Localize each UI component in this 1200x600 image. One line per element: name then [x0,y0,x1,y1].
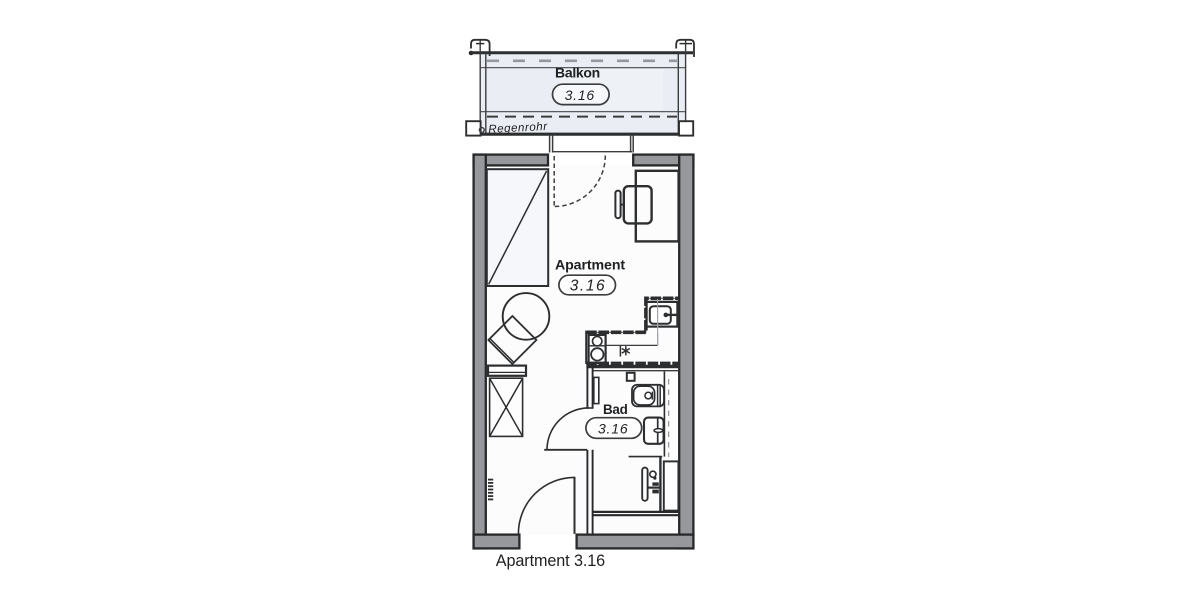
svg-text:3.16: 3.16 [565,87,595,103]
svg-text:Bad: Bad [603,402,628,417]
svg-text:3.16: 3.16 [570,277,607,294]
svg-text:3.16: 3.16 [598,421,628,437]
svg-text:Balkon: Balkon [555,65,600,81]
svg-text:Apartment: Apartment [555,257,625,273]
svg-text:Apartment 3.16: Apartment 3.16 [496,552,605,570]
